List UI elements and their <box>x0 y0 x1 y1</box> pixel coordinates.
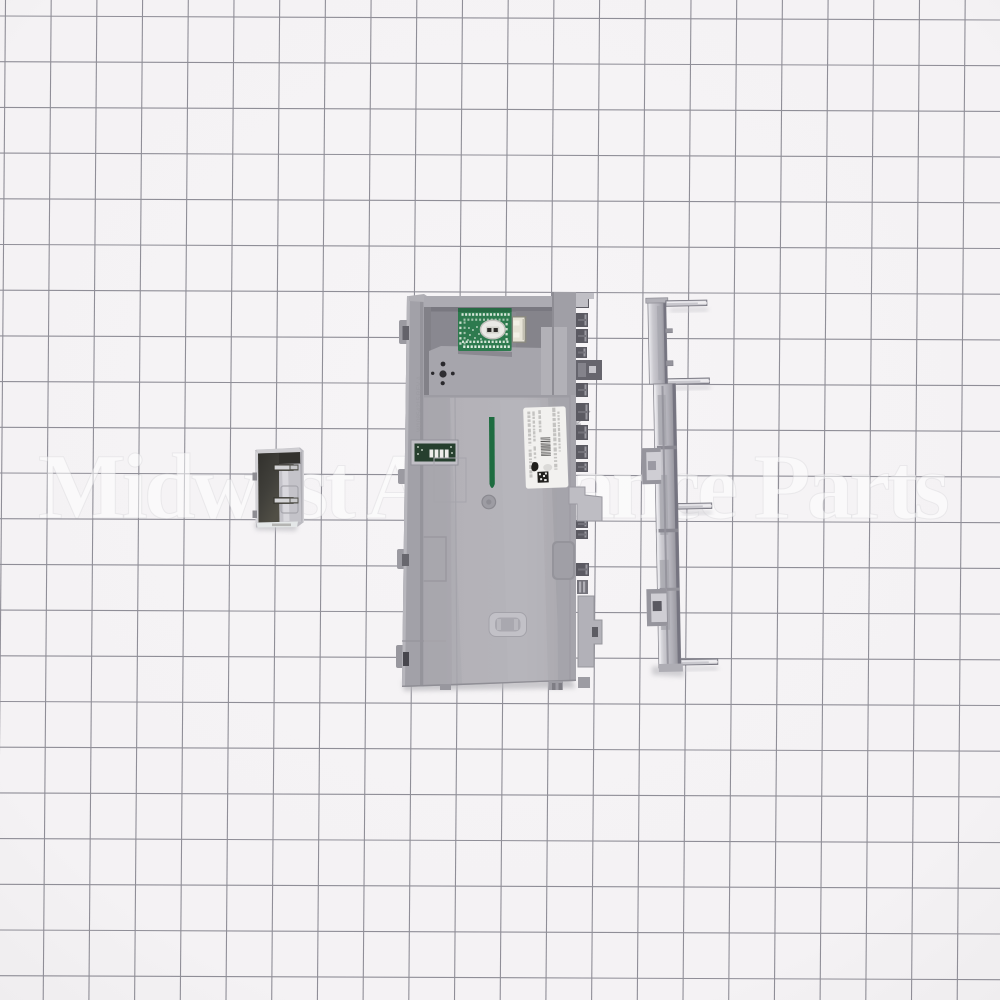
svg-text:W10854215 REV A: W10854215 REV A <box>416 375 423 432</box>
